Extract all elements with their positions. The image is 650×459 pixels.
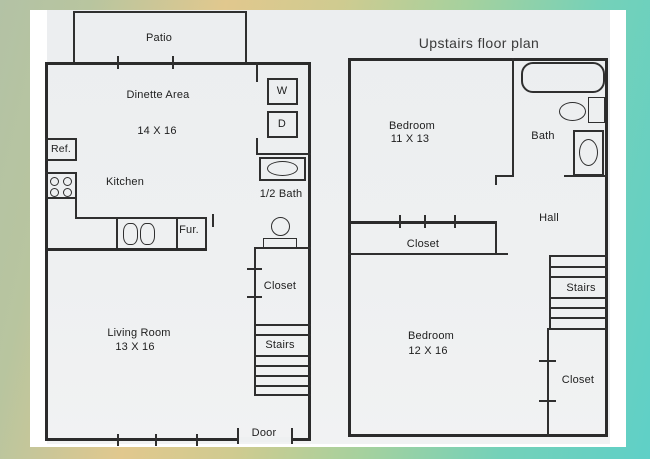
stair-tread: [549, 317, 608, 319]
stair-tread: [549, 276, 608, 278]
stair-tread: [254, 375, 311, 377]
stair-tread: [254, 394, 311, 396]
stair-tread: [549, 255, 608, 257]
bedroom-large-size-label: 12 X 16: [408, 345, 447, 357]
bathtub: [521, 62, 605, 93]
washer-label: W: [277, 85, 288, 97]
living-room-label: Living Room: [107, 327, 170, 339]
wall-tick: [196, 434, 198, 446]
bath-wall: [512, 58, 514, 177]
closet-door-tick: [247, 296, 262, 298]
stair-tread: [254, 334, 311, 336]
sink-basin-left: [123, 223, 138, 245]
closet-hall-label: Closet: [407, 238, 439, 250]
stair-tread: [254, 385, 311, 387]
wall-tick: [117, 56, 119, 69]
wall-tick: [155, 434, 157, 446]
floor-plan-screenshot: { "image_type": "scanned apartment floor…: [0, 0, 650, 459]
closet-bedroom-label: Closet: [562, 374, 594, 386]
stair-tread: [254, 324, 311, 326]
half-bath-wall: [256, 153, 311, 155]
vanity-sink-oval: [267, 161, 298, 176]
hall-closet-bottom-wall: [348, 253, 508, 255]
counter-step-v: [75, 198, 77, 219]
closet-door-tick: [539, 400, 556, 402]
door-jamb-tick: [291, 428, 293, 444]
bath-door-jog-v: [495, 175, 497, 185]
door-label: Door: [252, 427, 277, 439]
burner-icon: [63, 188, 72, 197]
wall-tick: [454, 215, 456, 228]
furnace-wall: [205, 217, 207, 251]
dryer-label: D: [278, 118, 286, 130]
bedroom-small-label: Bedroom: [389, 120, 435, 132]
stair-tread: [549, 328, 608, 330]
burner-icon: [63, 177, 72, 186]
hall-label: Hall: [539, 212, 559, 224]
refrigerator-label: Ref.: [51, 143, 71, 155]
half-bath-label: 1/2 Bath: [260, 188, 303, 200]
furnace-label: Fur.: [179, 224, 199, 236]
bedroom-closet-wall: [547, 328, 549, 437]
toilet-bowl: [271, 217, 290, 236]
kitchen-living-wall: [45, 248, 207, 251]
stairs-upstairs-label: Stairs: [566, 282, 595, 294]
stairs-downstairs-label: Stairs: [265, 339, 294, 351]
bath-sink-oval: [559, 102, 586, 121]
wall-tick: [117, 434, 119, 446]
hall-closet-side-wall: [495, 221, 497, 255]
wall-tick: [399, 215, 401, 228]
stair-tread: [254, 355, 311, 357]
stair-tread: [549, 307, 608, 309]
laundry-wall-upper: [256, 62, 258, 82]
bedroom-large-label: Bedroom: [408, 330, 454, 342]
closet-top-wall: [254, 247, 311, 249]
bedroom-small-wall: [348, 221, 497, 224]
dinette-size-label: 14 X 16: [137, 125, 176, 137]
door-jamb-tick: [237, 428, 239, 444]
toilet-bowl-upstairs: [579, 139, 598, 166]
stair-tread: [254, 365, 311, 367]
wall-tick: [424, 215, 426, 228]
closet-downstairs-label: Closet: [264, 280, 296, 292]
bedroom-small-size-label: 11 X 13: [391, 133, 430, 145]
bath-label: Bath: [531, 130, 554, 142]
burner-icon: [50, 188, 59, 197]
sink-basin-right: [140, 223, 155, 245]
wall-tick: [172, 56, 174, 69]
closet-door-tick: [247, 268, 262, 270]
kitchen-label: Kitchen: [106, 176, 144, 188]
stair-tread: [549, 266, 608, 268]
patio-label: Patio: [146, 32, 172, 44]
dinette-area-label: Dinette Area: [127, 89, 190, 101]
bath-cabinet: [588, 97, 605, 123]
closet-door-tick: [539, 360, 556, 362]
living-room-size-label: 13 X 16: [115, 341, 154, 353]
bath-door-jog-h: [495, 175, 514, 177]
stair-tread: [549, 297, 608, 299]
upstairs-title: Upstairs floor plan: [419, 35, 539, 51]
burner-icon: [50, 177, 59, 186]
furnace-tick: [212, 214, 214, 227]
